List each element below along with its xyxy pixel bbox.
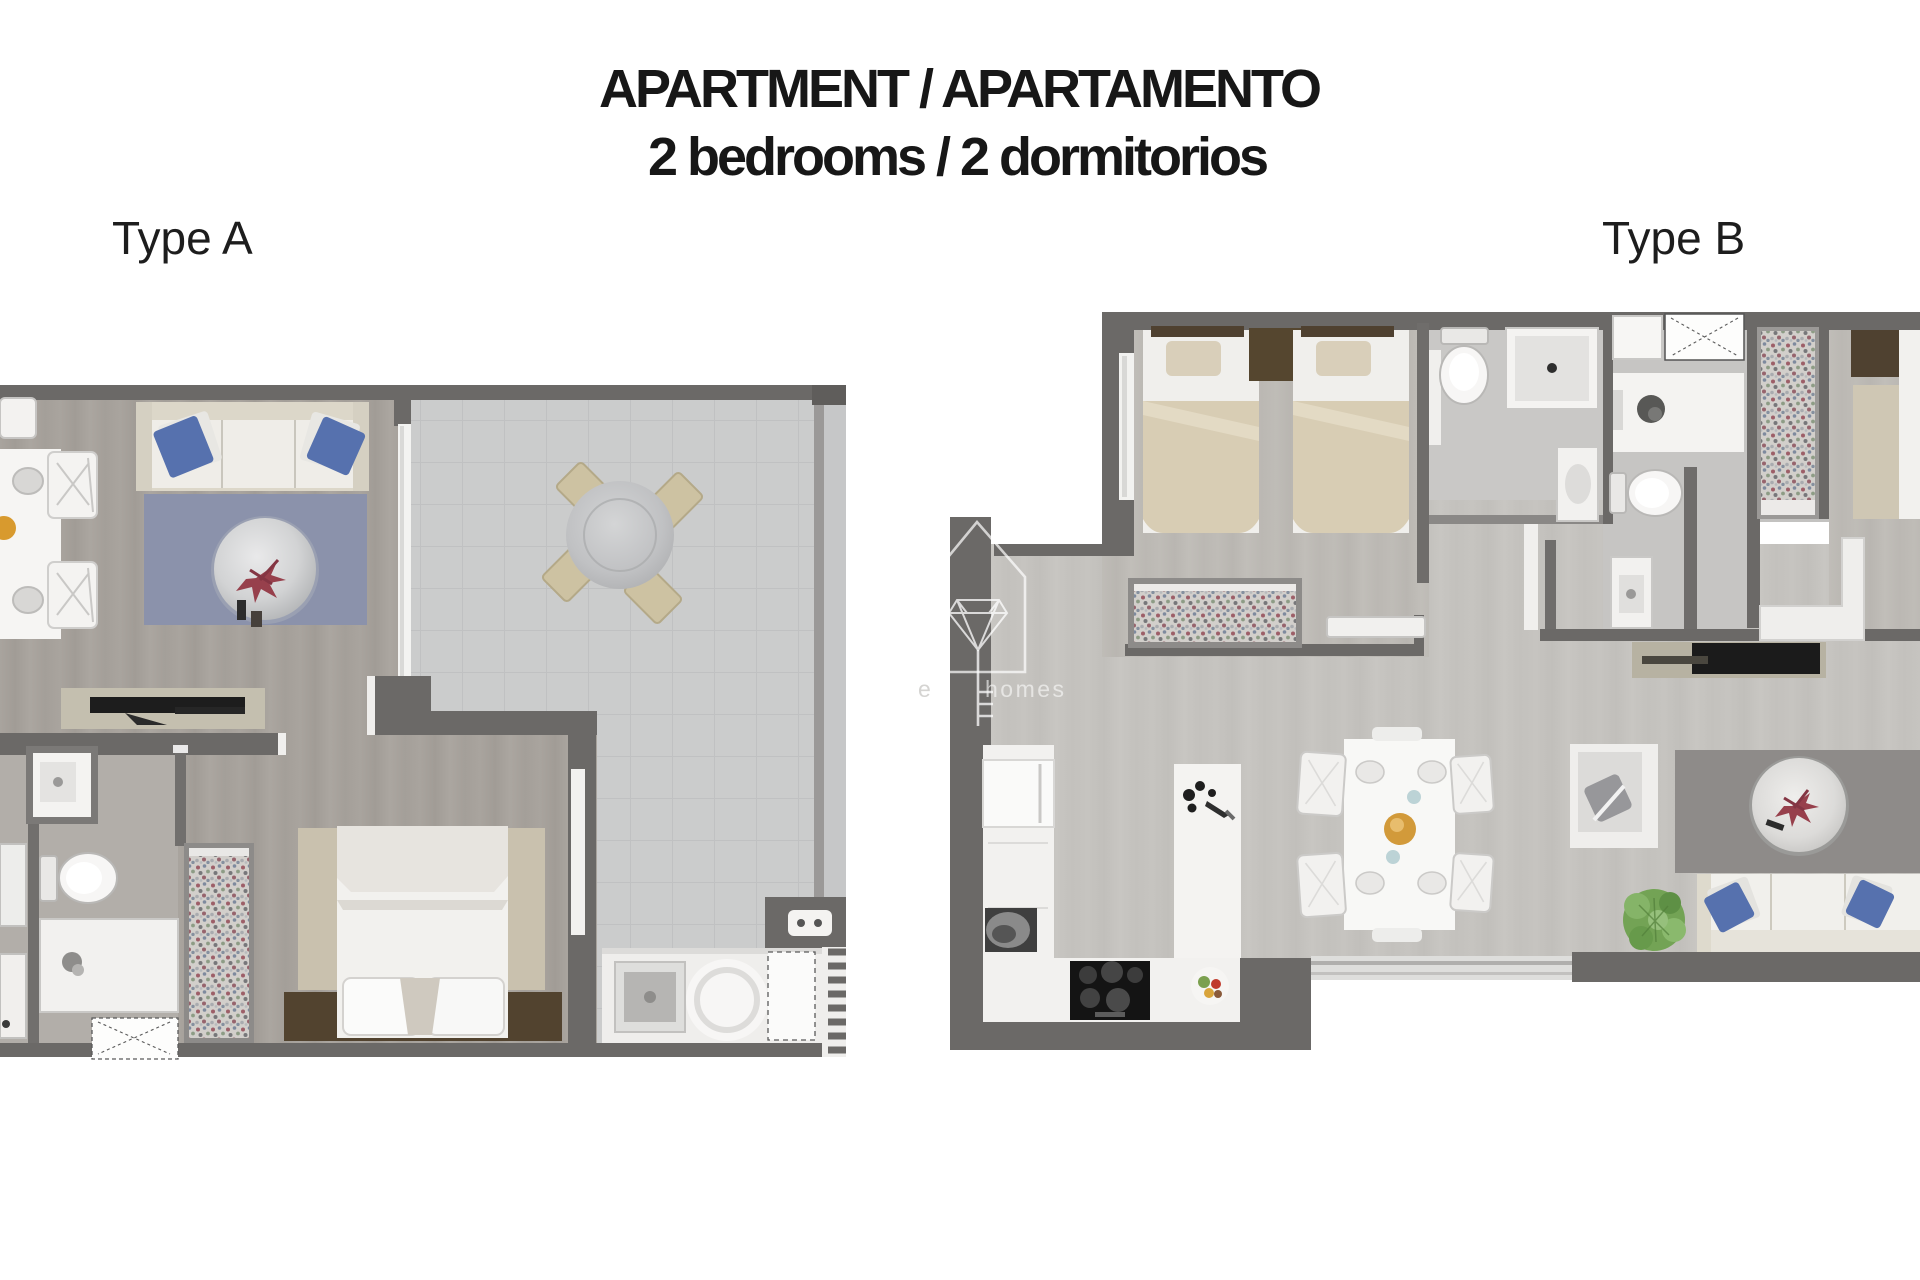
svg-text:APARTMENT / APARTAMENTO: APARTMENT / APARTAMENTO <box>599 59 1320 119</box>
svg-text:2 bedrooms / 2 dormitorios: 2 bedrooms / 2 dormitorios <box>648 127 1267 187</box>
svg-text:homes: homes <box>985 676 1067 702</box>
svg-text:e: e <box>918 676 931 702</box>
svg-text:Type A: Type A <box>112 212 253 264</box>
svg-text:Type B: Type B <box>1602 212 1745 264</box>
